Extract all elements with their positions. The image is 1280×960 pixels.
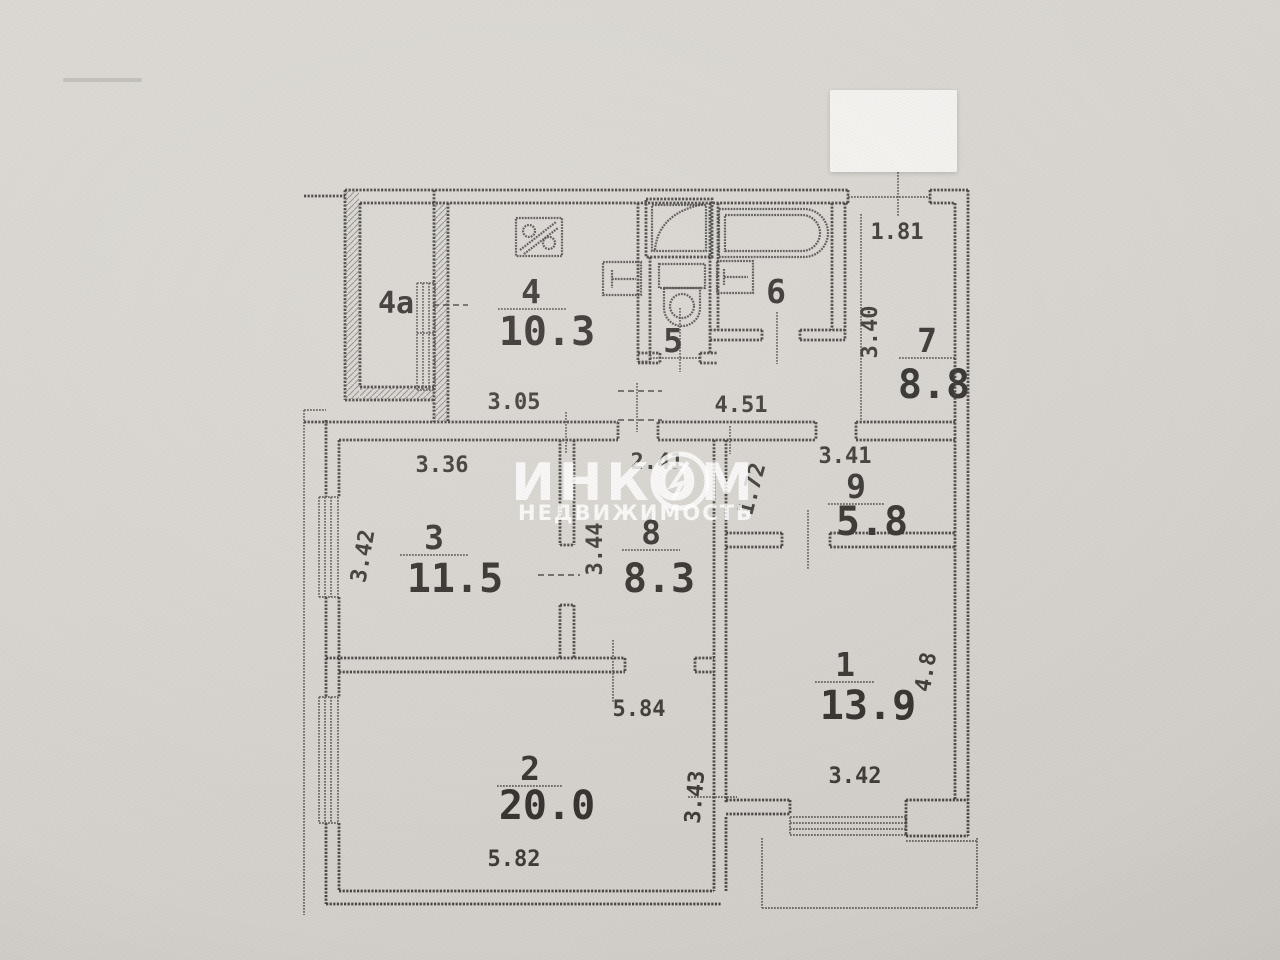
watermark: ИНКОМ НЕДВИЖИМОСТЬ — [511, 453, 757, 525]
room2-top-wall — [326, 658, 714, 672]
mid-wall — [304, 422, 955, 440]
room1-bottom-wall — [726, 800, 968, 836]
dim-3-41: 3.41 — [819, 444, 872, 469]
hatched-wall-kitchen-left — [435, 204, 447, 421]
dim-3-40: 3.40 — [858, 306, 883, 359]
bath-hall-wall — [832, 203, 845, 340]
dim-5-82: 5.82 — [488, 847, 541, 872]
left-wall — [326, 420, 339, 904]
balcony-bottom-right-outline — [762, 838, 977, 908]
dim-3-05: 3.05 — [488, 390, 541, 415]
room-9-area: 5.8 — [836, 499, 908, 545]
watermark-subtitle: НЕДВИЖИМОСТЬ — [518, 501, 754, 525]
room-3-area: 11.5 — [407, 556, 503, 602]
room-6-number: 6 — [766, 272, 786, 311]
room-labels: 4а 4 10.3 5 6 7 9 5.8 3 11.5 8 8.3 1 13.… — [378, 272, 937, 829]
dim-4-51: 4.51 — [715, 393, 768, 418]
bathtub-icon — [719, 209, 828, 257]
hatched-wall-loggia-left — [346, 191, 359, 399]
dim-3-43: 3.43 — [681, 770, 711, 825]
room-4-number: 4 — [521, 272, 541, 311]
room-1-number: 1 — [835, 645, 855, 684]
room-7-area: 8.8 — [898, 362, 970, 408]
dim-3-42-bottom: 3.42 — [829, 764, 882, 789]
kitchen-sink-icon — [516, 218, 562, 256]
room-2-area: 20.0 — [499, 783, 595, 829]
kitchen-right-wall — [638, 203, 650, 362]
window-room1 — [790, 817, 906, 835]
balcony-left-outline — [304, 410, 326, 915]
dim-3-44: 3.44 — [583, 523, 608, 576]
dim-1-81: 1.81 — [871, 220, 924, 245]
washbasin-icon-left — [603, 262, 641, 295]
room-1-area: 13.9 — [820, 683, 916, 729]
room-3-number: 3 — [424, 518, 444, 557]
vent-shaft-diagonal — [655, 204, 704, 250]
top-wall — [304, 190, 968, 203]
floor-plan-drawing: 8.8 — [0, 0, 1280, 960]
labels-under-walls: 8.8 — [898, 362, 970, 408]
room-5-number: 5 — [663, 321, 683, 360]
dim-3-42-left: 3.42 — [347, 528, 381, 585]
room-4-area: 10.3 — [499, 309, 595, 355]
room-4a-number: 4а — [378, 286, 414, 321]
right-wall — [955, 190, 968, 836]
room-8-area: 8.3 — [623, 556, 695, 602]
floor-plan-scan: 8.8 — [0, 0, 1280, 960]
toilet-icon — [659, 264, 705, 326]
washbasin-icon-bath — [717, 261, 753, 293]
vent-shaft — [646, 199, 712, 257]
dim-5-84: 5.84 — [613, 697, 666, 722]
window-room3 — [319, 497, 338, 597]
ink-layer: 4а 4 10.3 5 6 7 9 5.8 3 11.5 8 8.3 1 13.… — [304, 172, 977, 915]
bottom-wall — [326, 891, 722, 904]
window-room2 — [319, 697, 338, 823]
dim-4-8: 4.8 — [911, 650, 943, 693]
dim-3-36: 3.36 — [416, 453, 469, 478]
redaction-sticker — [830, 90, 957, 172]
room-7-number: 7 — [917, 321, 937, 360]
window-loggia — [417, 283, 435, 390]
